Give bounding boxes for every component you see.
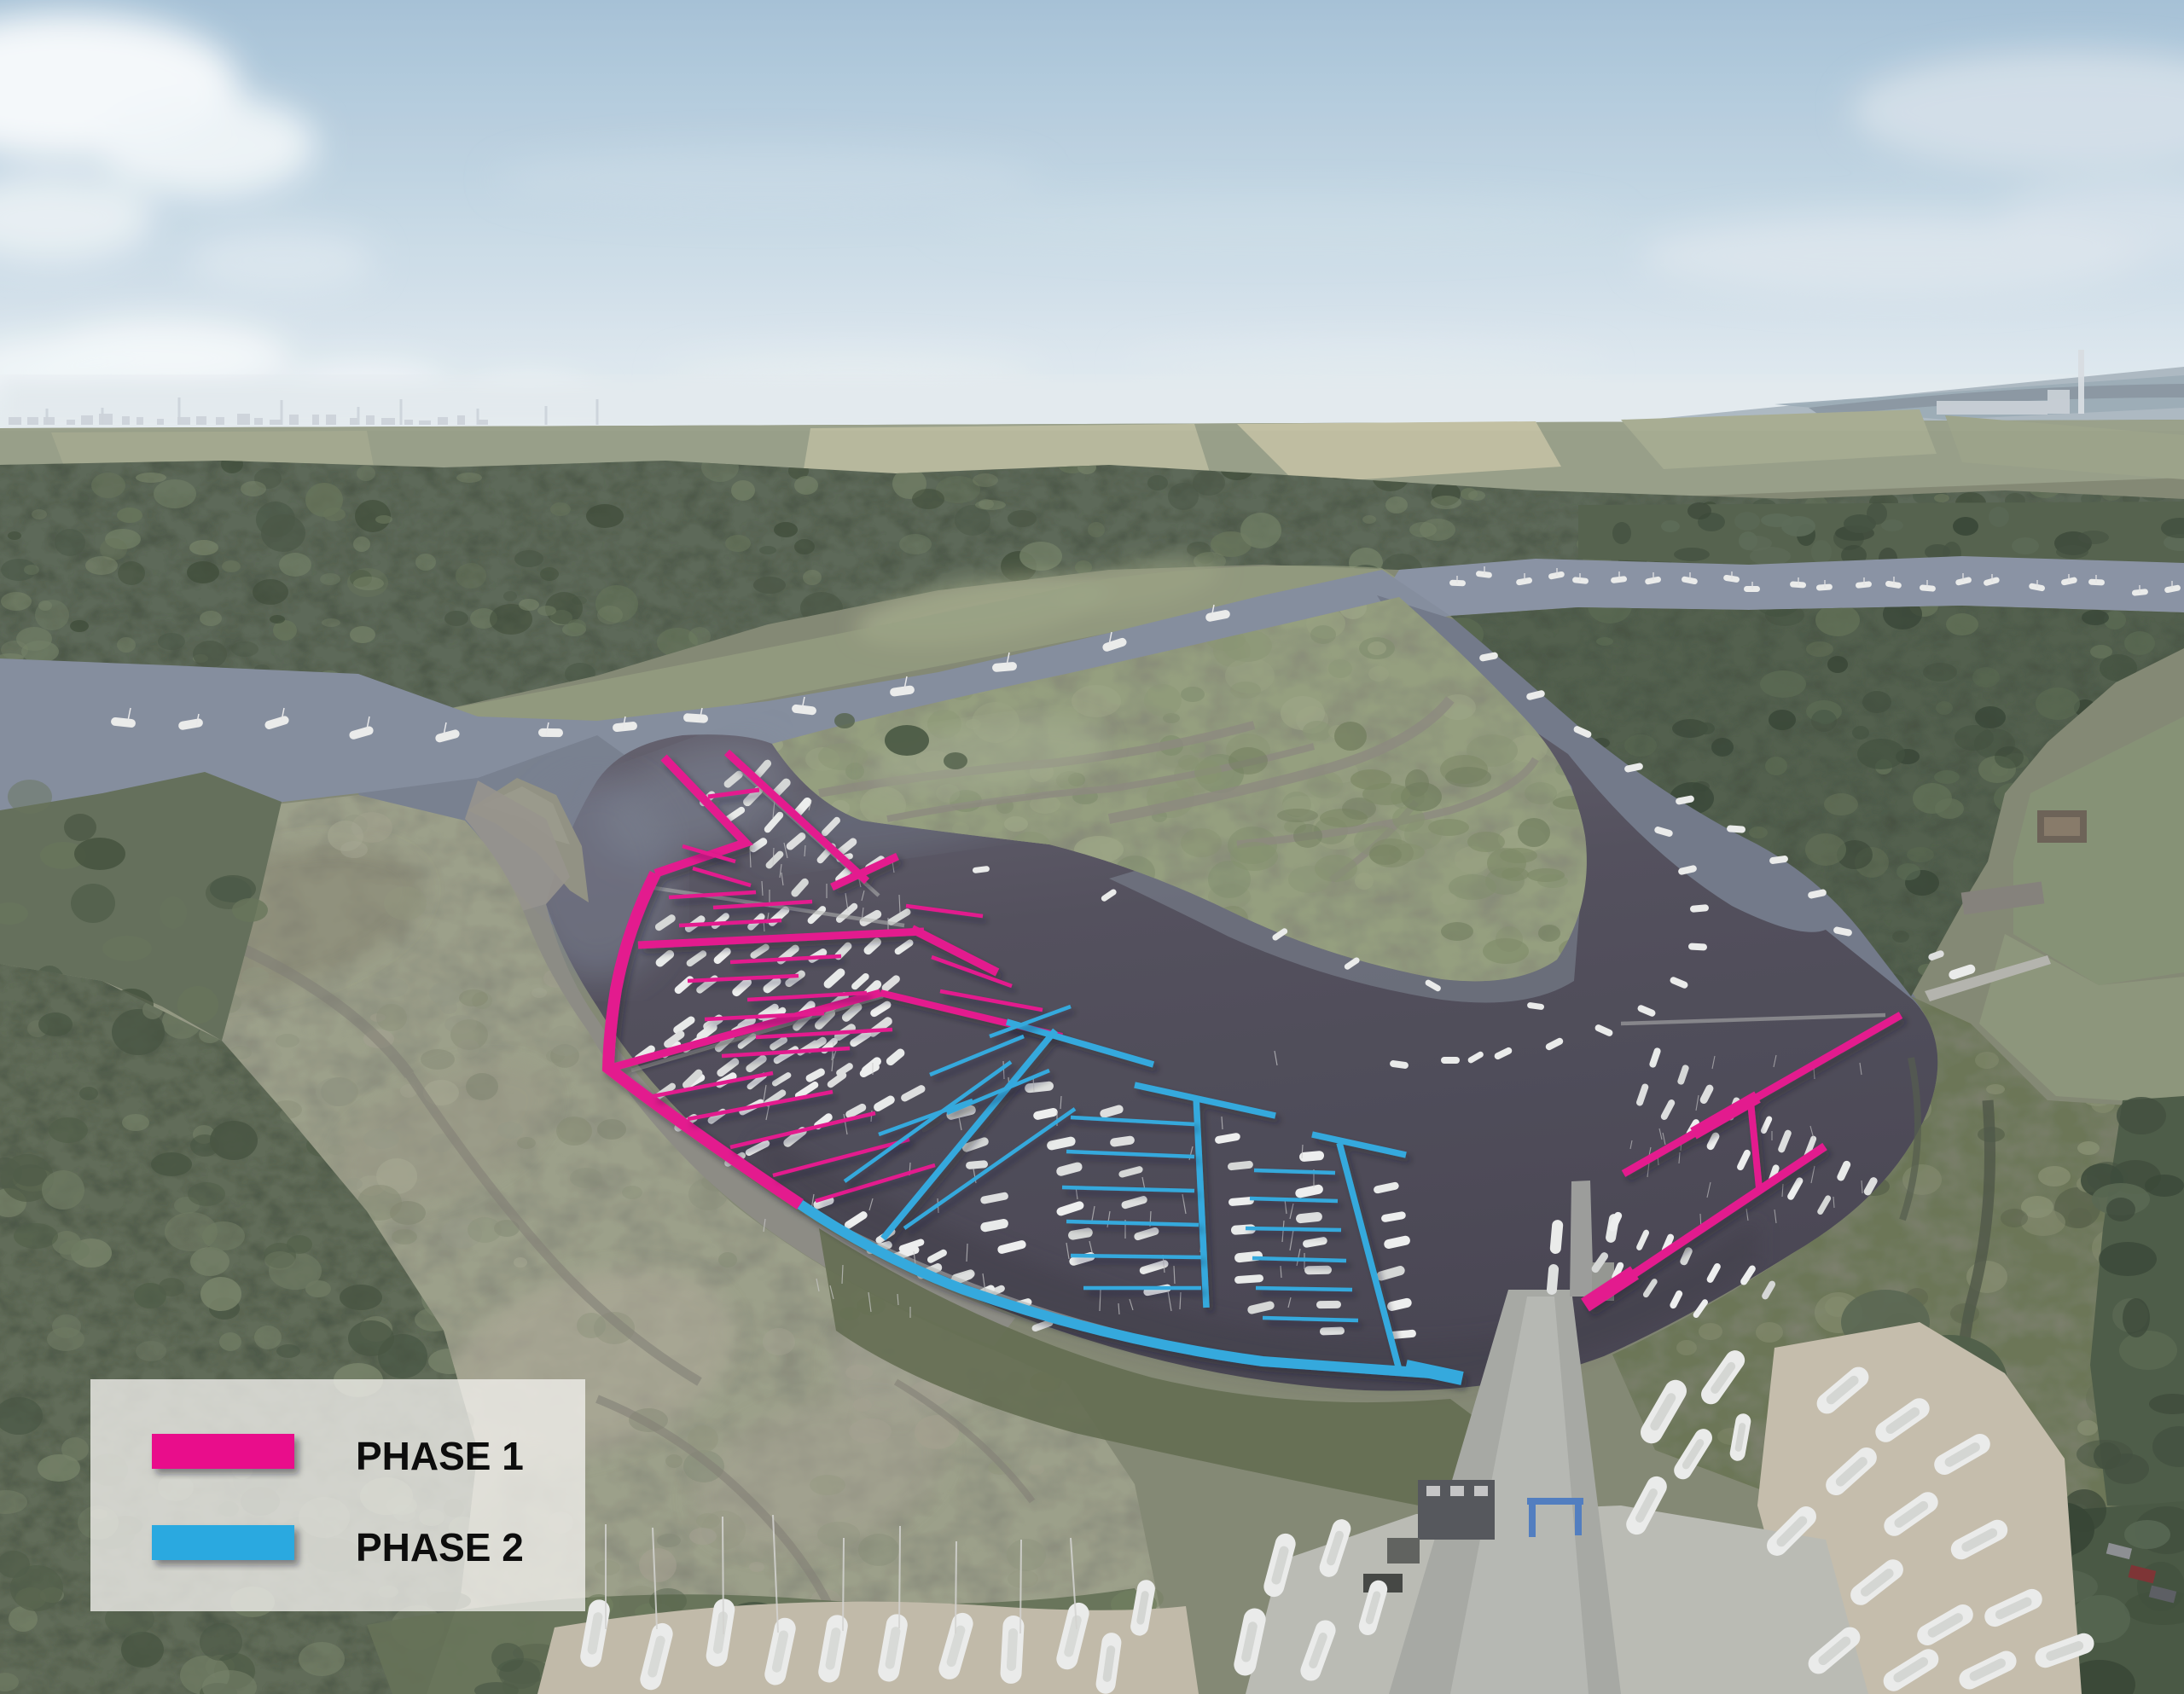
svg-text:PHASE 2: PHASE 2 (356, 1525, 524, 1569)
svg-text:PHASE 1: PHASE 1 (356, 1434, 524, 1478)
